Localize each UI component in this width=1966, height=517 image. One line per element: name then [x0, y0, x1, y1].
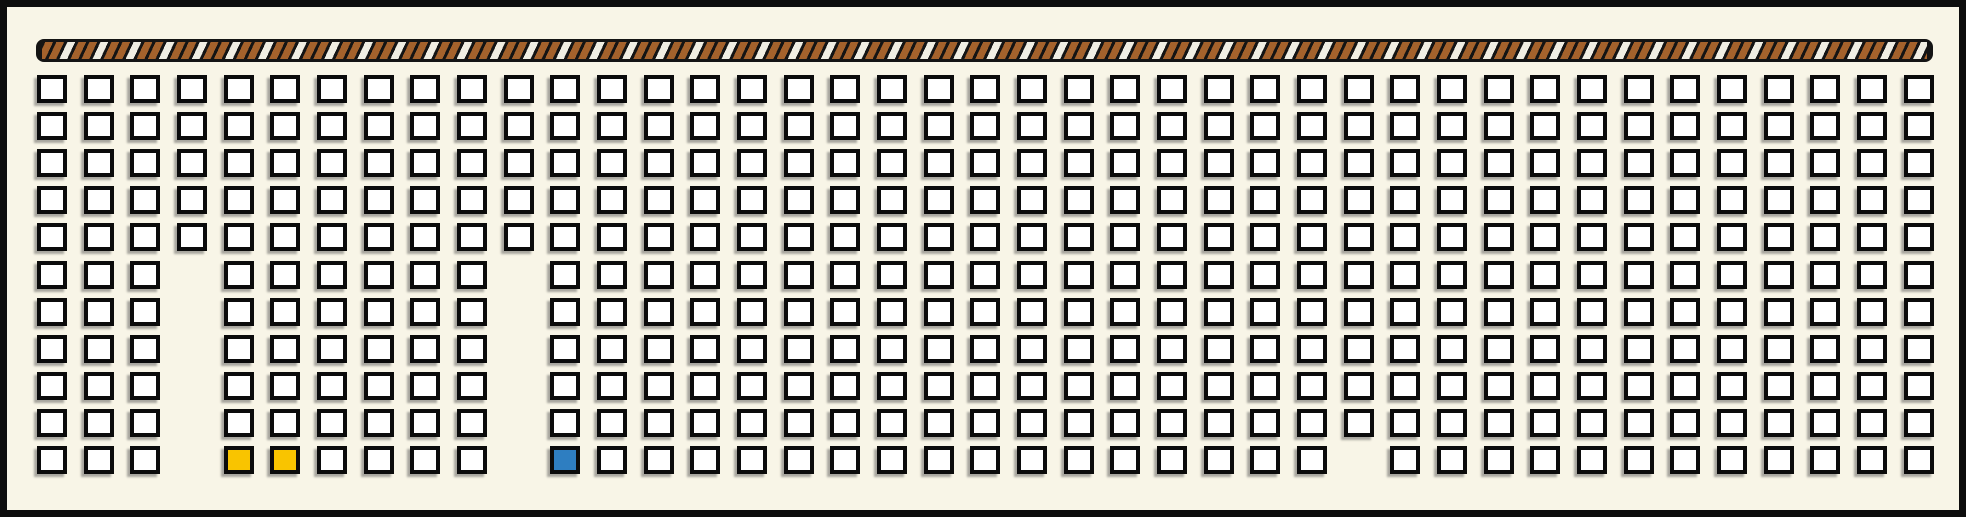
seat-cell[interactable]	[410, 409, 440, 437]
seat-cell[interactable]	[130, 186, 160, 214]
seat-cell[interactable]	[1250, 75, 1280, 103]
seat-cell[interactable]	[1297, 446, 1327, 474]
seat-cell[interactable]	[1297, 112, 1327, 140]
seat-cell[interactable]	[84, 223, 114, 251]
seat-cell[interactable]	[410, 298, 440, 326]
seat-cell[interactable]	[1857, 112, 1887, 140]
seat-cell[interactable]	[877, 298, 907, 326]
seat-cell[interactable]	[970, 149, 1000, 177]
seat-cell[interactable]	[877, 186, 907, 214]
seat-cell[interactable]	[1157, 75, 1187, 103]
seat-cell[interactable]	[1204, 75, 1234, 103]
seat-cell[interactable]	[270, 186, 300, 214]
seat-cell[interactable]	[177, 223, 207, 251]
seat-cell[interactable]	[1157, 223, 1187, 251]
seat-cell[interactable]	[597, 112, 627, 140]
seat-cell[interactable]	[457, 149, 487, 177]
seat-cell[interactable]	[130, 372, 160, 400]
seat-cell[interactable]	[597, 335, 627, 363]
seat-cell[interactable]	[924, 75, 954, 103]
seat-cell[interactable]	[1157, 372, 1187, 400]
seat-cell[interactable]	[504, 223, 534, 251]
seat-cell[interactable]	[1204, 186, 1234, 214]
seat-cell[interactable]	[1670, 298, 1700, 326]
seat-cell[interactable]	[1764, 186, 1794, 214]
seat-cell[interactable]	[597, 409, 627, 437]
seat-cell[interactable]	[1344, 223, 1374, 251]
seat-cell[interactable]	[1857, 261, 1887, 289]
seat-cell[interactable]	[1717, 223, 1747, 251]
seat-cell[interactable]	[130, 409, 160, 437]
seat-cell[interactable]	[784, 335, 814, 363]
seat-cell[interactable]	[1670, 261, 1700, 289]
seat-cell[interactable]	[1530, 298, 1560, 326]
seat-cell[interactable]	[1297, 409, 1327, 437]
seat-cell[interactable]	[1064, 409, 1094, 437]
seat-cell[interactable]	[690, 223, 720, 251]
seat-cell[interactable]	[1810, 298, 1840, 326]
seat-cell[interactable]	[1250, 149, 1280, 177]
seat-cell[interactable]	[737, 223, 767, 251]
seat-cell[interactable]	[410, 75, 440, 103]
seat-cell[interactable]	[317, 409, 347, 437]
seat-cell[interactable]	[1857, 186, 1887, 214]
seat-cell[interactable]	[1810, 223, 1840, 251]
seat-cell[interactable]	[317, 298, 347, 326]
seat-cell[interactable]	[550, 298, 580, 326]
seat-cell[interactable]	[1157, 261, 1187, 289]
seat-cell[interactable]	[1810, 446, 1840, 474]
seat-cell[interactable]	[364, 446, 394, 474]
seat-cell[interactable]	[364, 372, 394, 400]
seat-cell[interactable]	[924, 149, 954, 177]
seat-cell[interactable]	[1344, 298, 1374, 326]
seat-cell[interactable]	[270, 223, 300, 251]
seat-cell[interactable]	[970, 372, 1000, 400]
seat-cell[interactable]	[504, 186, 534, 214]
seat-cell[interactable]	[130, 298, 160, 326]
seat-cell[interactable]	[1764, 298, 1794, 326]
seat-cell[interactable]	[1437, 446, 1467, 474]
seat-cell[interactable]	[1110, 112, 1140, 140]
seat-cell[interactable]	[1857, 409, 1887, 437]
seat-cell[interactable]	[224, 186, 254, 214]
seat-cell[interactable]	[737, 335, 767, 363]
seat-cell[interactable]	[784, 75, 814, 103]
seat-cell[interactable]	[1064, 261, 1094, 289]
seat-cell[interactable]	[457, 223, 487, 251]
seat-cell[interactable]	[1390, 75, 1420, 103]
seat-cell[interactable]	[877, 223, 907, 251]
seat-cell[interactable]	[1344, 149, 1374, 177]
seat-cell[interactable]	[1157, 335, 1187, 363]
seat-cell[interactable]	[130, 75, 160, 103]
seat-cell[interactable]	[550, 261, 580, 289]
seat-cell[interactable]	[1157, 298, 1187, 326]
seat-cell[interactable]	[1577, 112, 1607, 140]
seat-cell[interactable]	[84, 75, 114, 103]
seat-cell[interactable]	[1810, 75, 1840, 103]
seat-cell[interactable]	[550, 75, 580, 103]
seat-cell[interactable]	[970, 223, 1000, 251]
seat-cell[interactable]	[84, 335, 114, 363]
seat-cell[interactable]	[1670, 446, 1700, 474]
seat-cell[interactable]	[1390, 446, 1420, 474]
seat-cell[interactable]	[1204, 372, 1234, 400]
seat-cell[interactable]	[690, 186, 720, 214]
seat-cell[interactable]	[1250, 261, 1280, 289]
seat-cell[interactable]	[1577, 409, 1607, 437]
seat-cell[interactable]	[1484, 335, 1514, 363]
seat-cell[interactable]	[177, 149, 207, 177]
seat-cell[interactable]	[1577, 149, 1607, 177]
seat-cell[interactable]	[1904, 223, 1934, 251]
seat-cell[interactable]	[364, 149, 394, 177]
seat-cell[interactable]	[410, 335, 440, 363]
seat-cell[interactable]	[37, 112, 67, 140]
seat-cell[interactable]	[1390, 261, 1420, 289]
seat-cell[interactable]	[364, 335, 394, 363]
seat-cell[interactable]	[970, 335, 1000, 363]
seat-cell[interactable]	[1670, 75, 1700, 103]
seat-cell[interactable]	[1204, 223, 1234, 251]
seat-cell[interactable]	[270, 261, 300, 289]
seat-cell[interactable]	[1204, 335, 1234, 363]
seat-cell[interactable]	[1110, 75, 1140, 103]
seat-cell[interactable]	[1344, 112, 1374, 140]
seat-cell[interactable]	[130, 335, 160, 363]
seat-cell[interactable]	[1204, 261, 1234, 289]
seat-cell[interactable]	[1810, 186, 1840, 214]
seat-cell[interactable]	[1904, 409, 1934, 437]
seat-cell[interactable]	[830, 446, 860, 474]
seat-cell[interactable]	[1344, 409, 1374, 437]
seat-cell[interactable]	[1764, 261, 1794, 289]
seat-cell[interactable]	[1857, 149, 1887, 177]
seat-cell[interactable]	[224, 223, 254, 251]
seat-cell[interactable]	[1624, 186, 1654, 214]
seat-cell[interactable]	[504, 112, 534, 140]
seat-cell[interactable]	[224, 409, 254, 437]
seat-cell[interactable]	[410, 149, 440, 177]
seat-cell[interactable]	[1764, 223, 1794, 251]
seat-cell[interactable]	[830, 112, 860, 140]
seat-cell[interactable]	[737, 446, 767, 474]
seat-cell[interactable]	[597, 298, 627, 326]
seat-cell[interactable]	[1017, 223, 1047, 251]
seat-cell[interactable]	[1624, 446, 1654, 474]
seat-cell[interactable]	[1530, 372, 1560, 400]
seat-cell[interactable]	[130, 149, 160, 177]
seat-cell[interactable]	[410, 446, 440, 474]
seat-cell[interactable]	[1624, 149, 1654, 177]
seat-cell[interactable]	[84, 186, 114, 214]
seat-cell[interactable]	[644, 112, 674, 140]
seat-cell[interactable]	[224, 261, 254, 289]
seat-cell[interactable]	[270, 335, 300, 363]
seat-cell[interactable]	[877, 446, 907, 474]
seat-cell[interactable]	[1624, 75, 1654, 103]
seat-cell[interactable]	[1484, 298, 1514, 326]
seat-cell[interactable]	[690, 372, 720, 400]
seat-cell[interactable]	[1857, 372, 1887, 400]
seat-cell[interactable]	[1064, 223, 1094, 251]
seat-cell[interactable]	[270, 149, 300, 177]
seat-cell[interactable]	[737, 75, 767, 103]
seat-cell[interactable]	[457, 446, 487, 474]
seat-cell[interactable]	[270, 409, 300, 437]
seat-cell[interactable]	[504, 149, 534, 177]
seat-cell[interactable]	[1717, 186, 1747, 214]
seat-cell[interactable]	[970, 261, 1000, 289]
seat-cell[interactable]	[877, 409, 907, 437]
seat-cell[interactable]	[1810, 149, 1840, 177]
seat-cell[interactable]	[1624, 298, 1654, 326]
seat-cell[interactable]	[1017, 112, 1047, 140]
seat-cell[interactable]	[1624, 335, 1654, 363]
seat-cell[interactable]	[597, 223, 627, 251]
seat-cell[interactable]	[644, 261, 674, 289]
seat-cell[interactable]	[317, 75, 347, 103]
seat-cell[interactable]	[784, 112, 814, 140]
seat-cell[interactable]	[457, 261, 487, 289]
seat-cell[interactable]	[550, 409, 580, 437]
seat-cell[interactable]	[690, 446, 720, 474]
seat-cell[interactable]	[737, 186, 767, 214]
seat-cell[interactable]	[270, 298, 300, 326]
seat-cell[interactable]	[1577, 335, 1607, 363]
seat-cell[interactable]	[130, 223, 160, 251]
seat-cell[interactable]	[690, 149, 720, 177]
seat-cell[interactable]	[1484, 75, 1514, 103]
seat-cell[interactable]	[690, 335, 720, 363]
seat-cell[interactable]	[924, 335, 954, 363]
seat-cell[interactable]	[1017, 298, 1047, 326]
seat-cell[interactable]	[1577, 446, 1607, 474]
seat-cell[interactable]	[177, 186, 207, 214]
seat-cell[interactable]	[1764, 409, 1794, 437]
seat-cell[interactable]	[1530, 223, 1560, 251]
seat-cell[interactable]	[1344, 186, 1374, 214]
seat-cell[interactable]	[1344, 335, 1374, 363]
seat-cell[interactable]	[1437, 372, 1467, 400]
seat-cell[interactable]	[1390, 298, 1420, 326]
seat-cell[interactable]	[37, 223, 67, 251]
seat-cell[interactable]	[1297, 335, 1327, 363]
seat-cell[interactable]	[1437, 409, 1467, 437]
seat-cell[interactable]	[457, 75, 487, 103]
seat-cell[interactable]	[37, 186, 67, 214]
seat-cell[interactable]	[1484, 112, 1514, 140]
seat-cell[interactable]	[1110, 298, 1140, 326]
seat-cell[interactable]	[364, 223, 394, 251]
seat-cell[interactable]	[784, 298, 814, 326]
seat-cell[interactable]	[1577, 223, 1607, 251]
seat-cell[interactable]	[364, 75, 394, 103]
seat-cell[interactable]	[270, 75, 300, 103]
seat-cell[interactable]	[784, 149, 814, 177]
seat-cell[interactable]	[1624, 261, 1654, 289]
seat-cell[interactable]	[1297, 75, 1327, 103]
seat-cell[interactable]	[1064, 298, 1094, 326]
seat-cell[interactable]	[877, 149, 907, 177]
seat-cell[interactable]	[1297, 298, 1327, 326]
seat-cell[interactable]	[1670, 149, 1700, 177]
seat-cell[interactable]	[597, 446, 627, 474]
seat-cell[interactable]	[1064, 75, 1094, 103]
seat-cell-selected-blue[interactable]	[550, 446, 580, 474]
seat-cell[interactable]	[644, 372, 674, 400]
seat-cell[interactable]	[830, 223, 860, 251]
seat-cell[interactable]	[784, 446, 814, 474]
seat-cell[interactable]	[317, 261, 347, 289]
seat-cell[interactable]	[1530, 75, 1560, 103]
seat-cell[interactable]	[644, 298, 674, 326]
seat-cell[interactable]	[1717, 372, 1747, 400]
seat-cell[interactable]	[784, 261, 814, 289]
seat-cell[interactable]	[830, 149, 860, 177]
seat-cell[interactable]	[1064, 186, 1094, 214]
seat-cell[interactable]	[597, 261, 627, 289]
seat-cell[interactable]	[1437, 261, 1467, 289]
seat-cell[interactable]	[830, 372, 860, 400]
seat-cell[interactable]	[550, 149, 580, 177]
seat-cell[interactable]	[1017, 75, 1047, 103]
seat-cell[interactable]	[1624, 223, 1654, 251]
seat-cell[interactable]	[1297, 186, 1327, 214]
seat-cell[interactable]	[644, 75, 674, 103]
seat-cell[interactable]	[130, 446, 160, 474]
seat-cell[interactable]	[644, 446, 674, 474]
seat-cell[interactable]	[317, 372, 347, 400]
seat-cell[interactable]	[1437, 112, 1467, 140]
seat-cell[interactable]	[1530, 186, 1560, 214]
seat-cell[interactable]	[690, 298, 720, 326]
seat-cell[interactable]	[1764, 149, 1794, 177]
seat-cell[interactable]	[37, 372, 67, 400]
seat-cell[interactable]	[457, 298, 487, 326]
seat-cell[interactable]	[830, 261, 860, 289]
seat-cell[interactable]	[84, 149, 114, 177]
seat-cell[interactable]	[550, 372, 580, 400]
seat-cell[interactable]	[877, 261, 907, 289]
seat-cell[interactable]	[784, 186, 814, 214]
seat-cell[interactable]	[1857, 298, 1887, 326]
seat-cell[interactable]	[1250, 446, 1280, 474]
seat-cell[interactable]	[644, 223, 674, 251]
seat-cell[interactable]	[1670, 186, 1700, 214]
seat-cell[interactable]	[1297, 149, 1327, 177]
seat-cell[interactable]	[1717, 112, 1747, 140]
seat-cell[interactable]	[1110, 186, 1140, 214]
seat-cell[interactable]	[830, 335, 860, 363]
seat-cell[interactable]	[1157, 186, 1187, 214]
seat-cell[interactable]	[877, 372, 907, 400]
seat-cell[interactable]	[1204, 149, 1234, 177]
seat-cell[interactable]	[877, 75, 907, 103]
seat-cell[interactable]	[317, 335, 347, 363]
seat-cell[interactable]	[1717, 298, 1747, 326]
seat-cell[interactable]	[130, 112, 160, 140]
seat-cell[interactable]	[1297, 223, 1327, 251]
seat-cell[interactable]	[1390, 149, 1420, 177]
seat-cell[interactable]	[1810, 372, 1840, 400]
seat-cell[interactable]	[37, 298, 67, 326]
seat-cell[interactable]	[1250, 298, 1280, 326]
seat-cell[interactable]	[1110, 372, 1140, 400]
seat-cell[interactable]	[224, 112, 254, 140]
seat-cell[interactable]	[1764, 112, 1794, 140]
seat-cell[interactable]	[1250, 186, 1280, 214]
seat-cell[interactable]	[1530, 149, 1560, 177]
seat-cell[interactable]	[504, 75, 534, 103]
seat-cell[interactable]	[924, 112, 954, 140]
seat-cell[interactable]	[1064, 149, 1094, 177]
seat-cell[interactable]	[597, 75, 627, 103]
seat-cell[interactable]	[1764, 372, 1794, 400]
seat-cell[interactable]	[1624, 409, 1654, 437]
seat-cell[interactable]	[84, 298, 114, 326]
seat-cell[interactable]	[364, 261, 394, 289]
seat-cell[interactable]	[644, 186, 674, 214]
seat-cell[interactable]	[1017, 372, 1047, 400]
seat-cell[interactable]	[1624, 112, 1654, 140]
seat-cell[interactable]	[970, 112, 1000, 140]
seat-cell[interactable]	[1157, 149, 1187, 177]
seat-cell[interactable]	[1110, 261, 1140, 289]
seat-cell[interactable]	[924, 409, 954, 437]
seat-cell[interactable]	[550, 335, 580, 363]
seat-cell[interactable]	[644, 409, 674, 437]
seat-cell[interactable]	[1437, 149, 1467, 177]
seat-cell[interactable]	[1857, 335, 1887, 363]
seat-cell-selected-yellow[interactable]	[270, 446, 300, 474]
seat-cell[interactable]	[690, 261, 720, 289]
seat-cell[interactable]	[1204, 446, 1234, 474]
seat-cell[interactable]	[1017, 335, 1047, 363]
seat-cell[interactable]	[1810, 261, 1840, 289]
seat-cell[interactable]	[84, 446, 114, 474]
seat-cell[interactable]	[970, 409, 1000, 437]
seat-cell[interactable]	[1157, 112, 1187, 140]
seat-cell[interactable]	[1344, 75, 1374, 103]
seat-cell-selected-yellow[interactable]	[224, 446, 254, 474]
seat-cell[interactable]	[1110, 149, 1140, 177]
seat-cell[interactable]	[457, 186, 487, 214]
seat-cell[interactable]	[1157, 446, 1187, 474]
seat-cell[interactable]	[1390, 335, 1420, 363]
seat-cell[interactable]	[1064, 112, 1094, 140]
seat-cell[interactable]	[37, 261, 67, 289]
seat-cell[interactable]	[737, 112, 767, 140]
seat-cell[interactable]	[1857, 446, 1887, 474]
seat-cell[interactable]	[830, 298, 860, 326]
seat-cell[interactable]	[177, 112, 207, 140]
seat-cell[interactable]	[1484, 372, 1514, 400]
seat-cell[interactable]	[317, 223, 347, 251]
seat-cell[interactable]	[1390, 186, 1420, 214]
seat-cell[interactable]	[970, 75, 1000, 103]
seat-cell[interactable]	[364, 298, 394, 326]
seat-cell[interactable]	[737, 149, 767, 177]
seat-cell[interactable]	[924, 298, 954, 326]
seat-cell[interactable]	[737, 261, 767, 289]
seat-cell[interactable]	[1064, 446, 1094, 474]
seat-cell[interactable]	[1810, 409, 1840, 437]
seat-cell[interactable]	[1064, 335, 1094, 363]
seat-cell[interactable]	[1390, 409, 1420, 437]
seat-cell[interactable]	[37, 149, 67, 177]
